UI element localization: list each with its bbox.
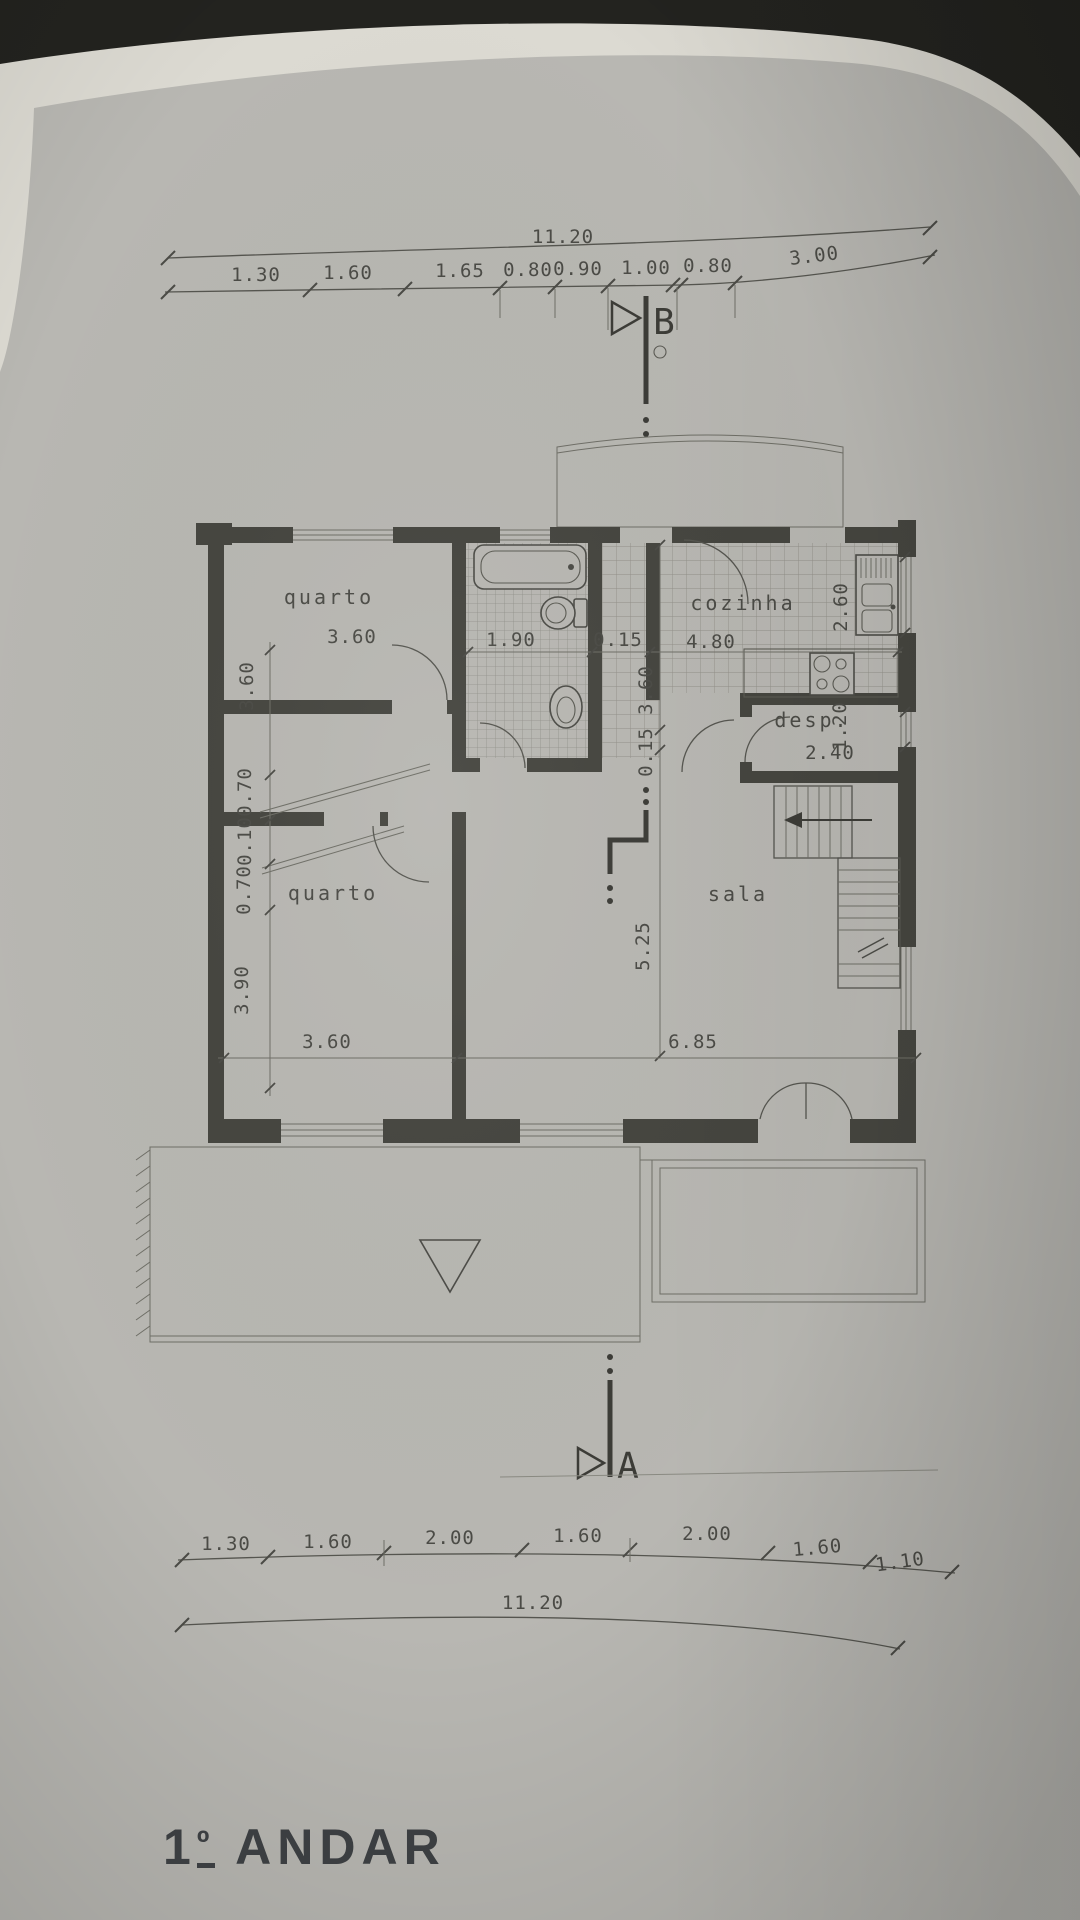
floor-plan-drawing: 11.20 1.30 1.60 1.65 0.80 0.90 1.00 0.80… bbox=[0, 0, 1080, 1920]
side-shade-overlay bbox=[660, 0, 1080, 1920]
photographed-plan-sheet: 11.20 1.30 1.60 1.65 0.80 0.90 1.00 0.80… bbox=[0, 0, 1080, 1920]
floor-number: 1 bbox=[163, 1819, 197, 1875]
sheet-title: 1º ANDAR bbox=[163, 1818, 446, 1876]
floor-ordinal-symbol: º bbox=[197, 1824, 215, 1868]
floor-title-text: ANDAR bbox=[235, 1819, 446, 1875]
